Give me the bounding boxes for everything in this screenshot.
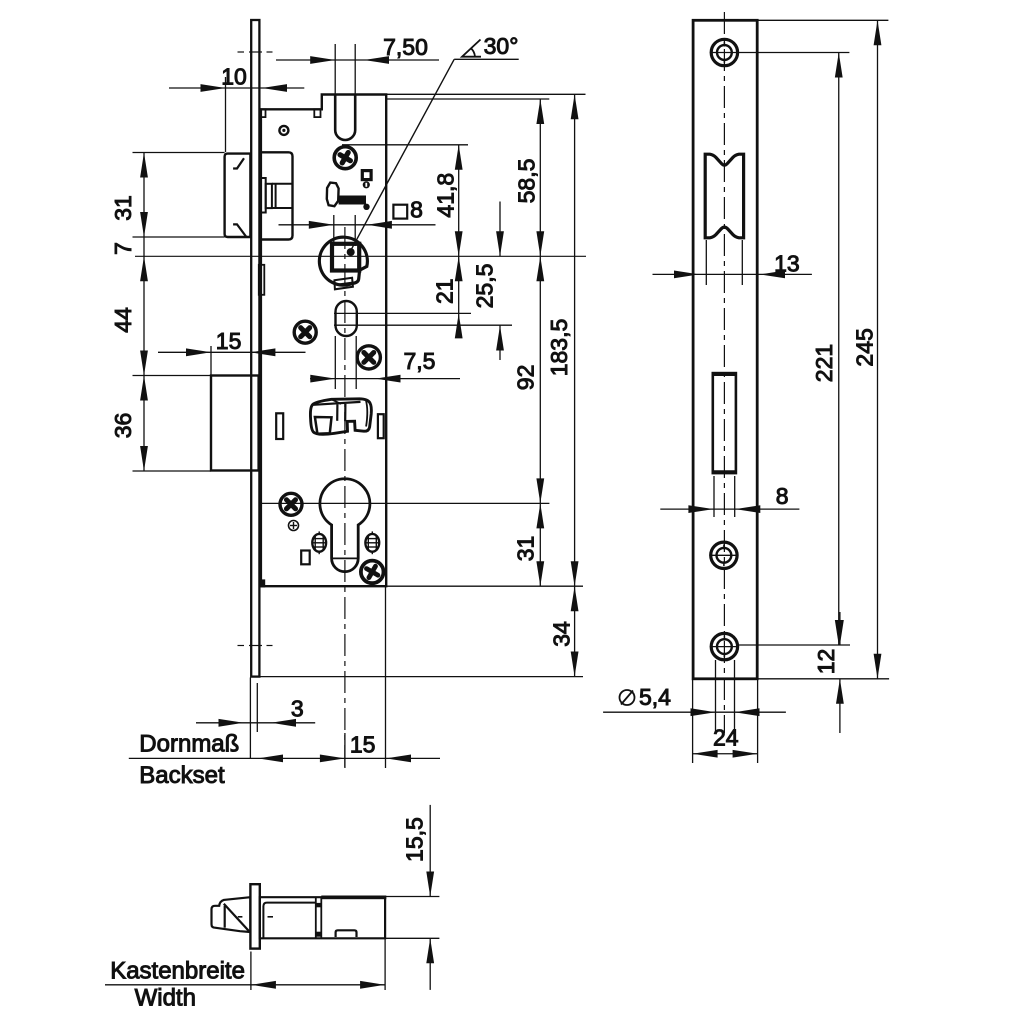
svg-text:Kastenbreite: Kastenbreite [110, 957, 245, 984]
svg-text:7: 7 [110, 242, 136, 255]
svg-text:183,5: 183,5 [546, 319, 572, 377]
svg-text:15: 15 [216, 328, 242, 354]
svg-text:10: 10 [221, 63, 247, 89]
svg-text:245: 245 [851, 328, 877, 366]
svg-text:7,50: 7,50 [383, 34, 428, 60]
svg-text:31: 31 [512, 536, 538, 562]
svg-text:13: 13 [774, 251, 800, 277]
svg-text:21: 21 [431, 278, 457, 304]
svg-text:25,5: 25,5 [472, 264, 498, 309]
svg-text:24: 24 [713, 725, 739, 751]
svg-text:12: 12 [813, 649, 839, 675]
svg-text:8: 8 [410, 197, 423, 223]
svg-text:Width: Width [135, 985, 196, 1012]
svg-text:41,8: 41,8 [432, 173, 458, 218]
svg-text:Backset: Backset [139, 762, 225, 789]
svg-text:34: 34 [549, 621, 575, 647]
svg-text:8: 8 [776, 483, 789, 509]
svg-text:5,4: 5,4 [639, 684, 671, 710]
svg-text:3: 3 [291, 696, 304, 722]
svg-text:15,5: 15,5 [402, 817, 428, 862]
svg-text:36: 36 [110, 413, 136, 439]
svg-text:Dornmaß: Dornmaß [139, 731, 239, 758]
svg-text:30°: 30° [484, 33, 519, 59]
svg-text:92: 92 [512, 365, 538, 391]
svg-text:58,5: 58,5 [513, 159, 539, 204]
svg-text:221: 221 [811, 344, 837, 382]
svg-text:7,5: 7,5 [404, 348, 436, 374]
svg-text:15: 15 [350, 731, 376, 757]
svg-text:44: 44 [110, 307, 136, 333]
svg-text:31: 31 [110, 195, 136, 221]
